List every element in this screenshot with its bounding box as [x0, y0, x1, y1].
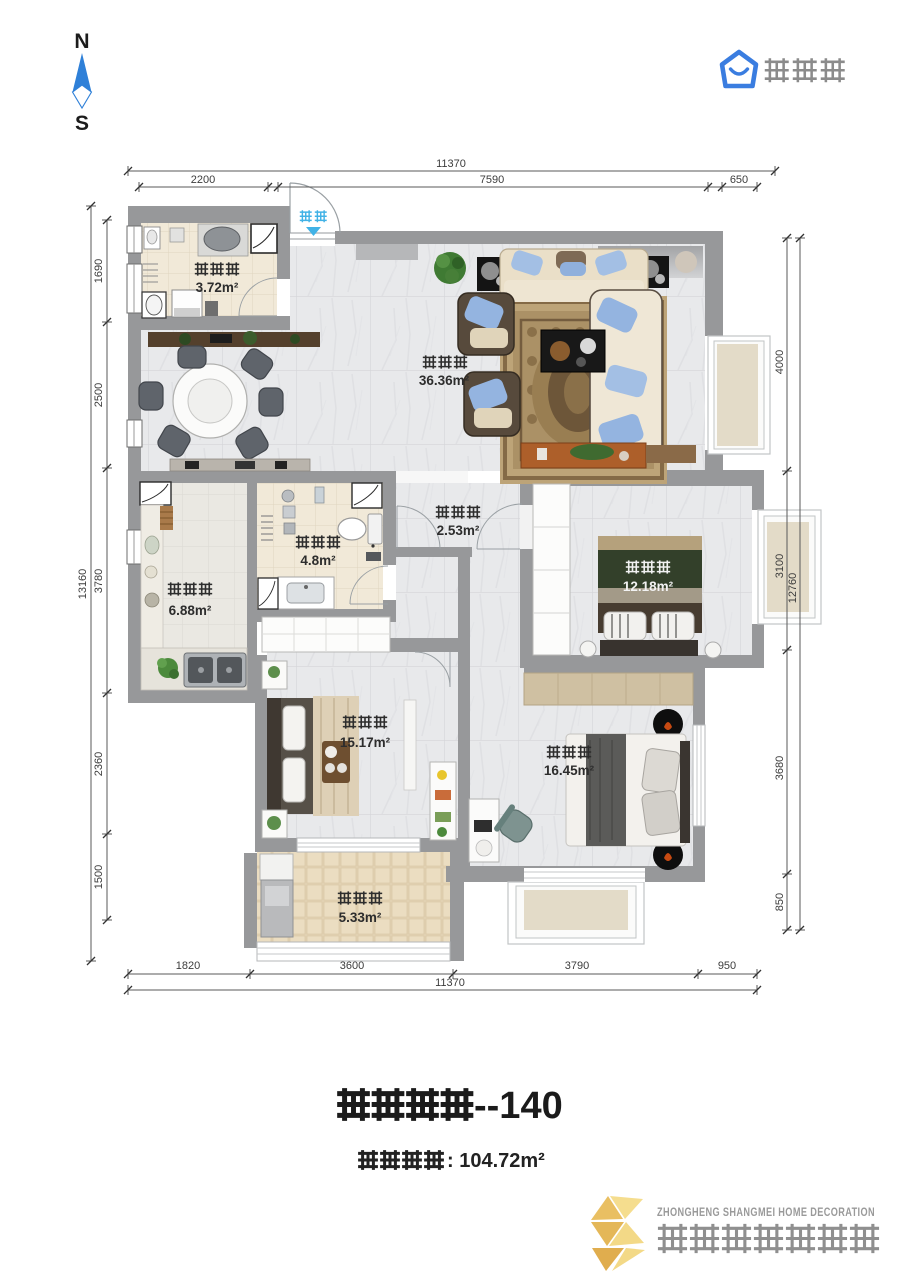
svg-text:3600: 3600 — [340, 960, 364, 972]
svg-text:2.53m²: 2.53m² — [437, 523, 480, 538]
svg-text:16.45m²: 16.45m² — [544, 763, 595, 778]
svg-text:2500: 2500 — [93, 383, 105, 407]
svg-text:1820: 1820 — [176, 960, 200, 972]
svg-text:3790: 3790 — [565, 960, 589, 972]
svg-text:15.17m²: 15.17m² — [340, 735, 391, 750]
svg-text:3780: 3780 — [93, 569, 105, 593]
svg-text:3680: 3680 — [774, 756, 786, 780]
svg-text:7590: 7590 — [480, 174, 504, 186]
svg-text:13160: 13160 — [77, 569, 89, 600]
svg-text:3100: 3100 — [774, 554, 786, 578]
svg-text:650: 650 — [730, 174, 748, 186]
svg-text:2360: 2360 — [93, 752, 105, 776]
svg-text:ZHONGHENG SHANGMEI HOME DECORA: ZHONGHENG SHANGMEI HOME DECORATION — [657, 1205, 875, 1219]
svg-text:950: 950 — [718, 960, 736, 972]
svg-text:1690: 1690 — [93, 259, 105, 283]
svg-text:4.8m²: 4.8m² — [300, 553, 336, 568]
svg-text:2200: 2200 — [191, 174, 215, 186]
svg-text:4000: 4000 — [774, 350, 786, 374]
svg-text:850: 850 — [774, 893, 786, 911]
svg-text:12.18m²: 12.18m² — [623, 579, 674, 594]
svg-text:5.33m²: 5.33m² — [339, 910, 382, 925]
svg-text:11370: 11370 — [435, 977, 465, 989]
svg-text:3.72m²: 3.72m² — [196, 280, 239, 295]
svg-text:--140: --140 — [474, 1085, 563, 1127]
svg-text:36.36m²: 36.36m² — [419, 373, 470, 388]
svg-text:12760: 12760 — [787, 573, 799, 604]
svg-text:N: N — [74, 30, 89, 53]
svg-text:6.88m²: 6.88m² — [169, 603, 212, 618]
svg-text:1500: 1500 — [93, 865, 105, 889]
svg-text:11370: 11370 — [436, 158, 466, 170]
svg-text:: 104.72m²: : 104.72m² — [447, 1150, 545, 1172]
svg-text:S: S — [75, 112, 89, 135]
